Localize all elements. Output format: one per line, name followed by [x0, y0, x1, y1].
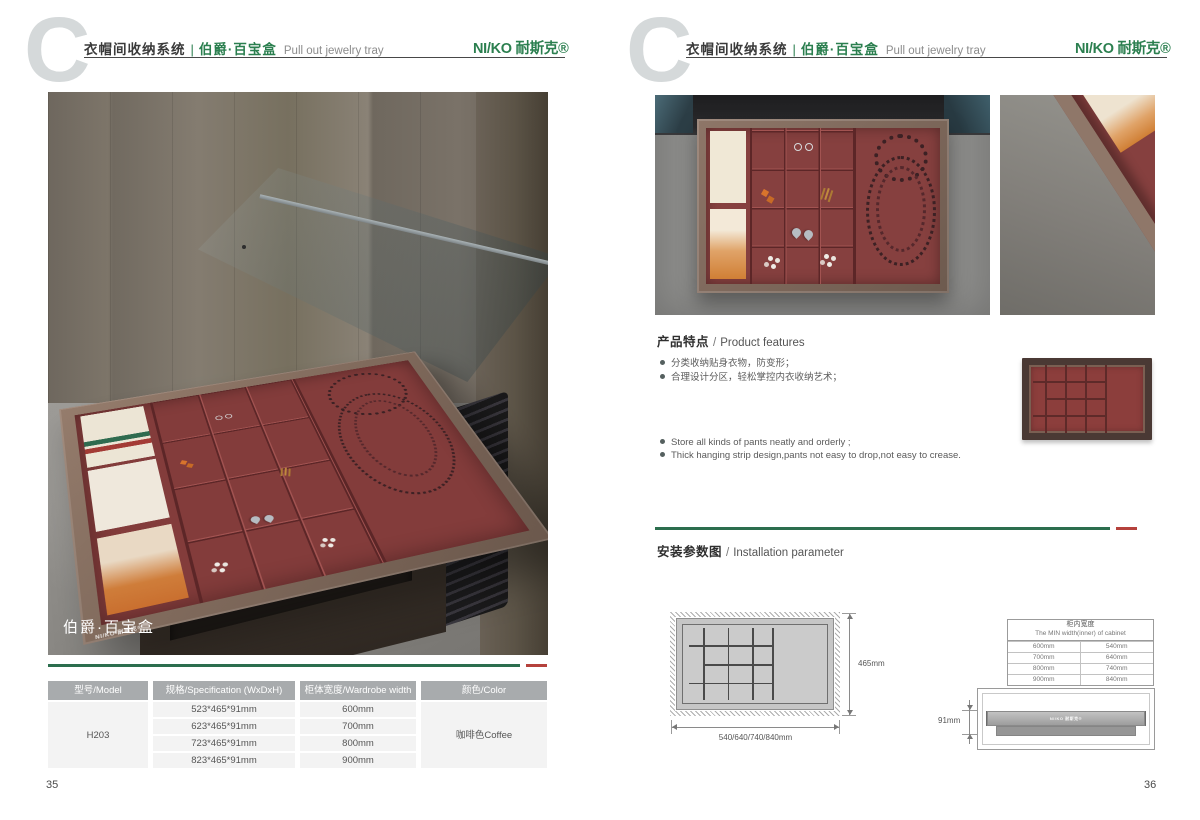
- title-separator: |: [793, 42, 796, 57]
- cell: 640mm: [1081, 652, 1154, 663]
- flower-brooch: [768, 256, 773, 261]
- feature-text: 合理设计分区，轻松掌控内衣收纳艺术；: [671, 372, 842, 383]
- table-row: 800mm 740mm: [1008, 663, 1153, 674]
- c-watermark: C: [626, 4, 692, 96]
- hinge-dot: [242, 245, 246, 249]
- c-watermark: C: [24, 4, 90, 96]
- section-divider-red: [526, 664, 547, 667]
- jewelry-tray: [697, 119, 949, 293]
- grid-line: [689, 683, 773, 685]
- page-number-left: 35: [46, 779, 58, 791]
- section-divider-red: [1116, 527, 1137, 530]
- tray-interior: [706, 128, 940, 284]
- dim-tick: [842, 715, 856, 716]
- product-name-en: Pull out jewelry tray: [284, 45, 384, 57]
- top-view-photo: [655, 95, 990, 315]
- table-row: 900mm 840mm: [1008, 674, 1153, 685]
- features-heading: 产品特点/Product features: [657, 331, 805, 351]
- title-separator: |: [191, 42, 194, 57]
- color-cell: 咖啡色Coffee: [421, 702, 547, 768]
- catalog-spread: C 衣帽间收纳系统|伯爵·百宝盒Pull out jewelry tray NI…: [0, 0, 1200, 820]
- scarf: [710, 209, 746, 279]
- cell: 700mm: [1008, 652, 1081, 663]
- grid-line: [689, 645, 773, 647]
- dim-arrow: [847, 710, 853, 715]
- section-divider-green: [655, 527, 1110, 530]
- main-photo-wardrobe: NI/KO 耐斯克® 伯爵·百宝盒: [48, 92, 548, 655]
- bullet-icon: [660, 452, 665, 457]
- table-row: 700mm 640mm: [1008, 652, 1153, 663]
- detail-photo: [1000, 95, 1155, 315]
- bullet-icon: [660, 439, 665, 444]
- model-cell: H203: [48, 702, 148, 768]
- min-width-table-header: 柜内宽度 The MIN width(inner) of cabinet: [1008, 620, 1153, 641]
- features-title-en: Product features: [720, 337, 804, 349]
- cell: 840mm: [1081, 674, 1154, 685]
- diagram-panel: [682, 624, 828, 704]
- scarf: [97, 524, 189, 616]
- earrings: [794, 138, 816, 156]
- width-cell: 700mm: [300, 719, 416, 734]
- bullet-icon: [660, 374, 665, 379]
- cell: 740mm: [1081, 663, 1154, 674]
- scarf: [80, 406, 155, 468]
- min-width-table: 柜内宽度 The MIN width(inner) of cabinet 600…: [1007, 619, 1154, 686]
- dim-line-vertical: [849, 614, 850, 715]
- feature-bullet: 分类收纳贴身衣物，防变形；: [660, 355, 795, 369]
- dim-arrow: [672, 724, 677, 730]
- dim-arrow: [847, 614, 853, 619]
- width-cell: 900mm: [300, 753, 416, 768]
- height-dimension-label: 91mm: [938, 716, 960, 725]
- cell: 900mm: [1008, 674, 1081, 685]
- installation-title-cn: 安装参数图: [657, 545, 722, 559]
- flower-brooch: [824, 254, 829, 259]
- spec-cell: 823*465*91mm: [153, 753, 295, 768]
- features-title-separator: /: [713, 337, 716, 349]
- col-header-model: 型号/Model: [48, 681, 148, 700]
- grid-line: [703, 664, 772, 666]
- product-name-cn: 伯爵·百宝盒: [801, 42, 879, 57]
- feature-bullet: Store all kinds of pants neatly and orde…: [660, 437, 851, 448]
- grid-line: [1033, 381, 1107, 383]
- installation-heading: 安装参数图/Installation parameter: [657, 541, 844, 561]
- brand-logo: NI/KO 耐斯克®: [1075, 37, 1171, 58]
- table-row: 600mm 540mm: [1008, 641, 1153, 652]
- open-compartment: [856, 128, 940, 284]
- tray-lower-profile: [996, 726, 1136, 736]
- scarf: [1075, 95, 1155, 153]
- brand-logo: NI/KO 耐斯克®: [473, 37, 569, 58]
- installation-title-en: Installation parameter: [733, 547, 844, 559]
- col-header-spec: 规格/Specification (WxDxH): [153, 681, 295, 700]
- side-view-diagram: NI/KO 耐斯克®: [977, 688, 1155, 750]
- min-width-title-cn: 柜内宽度: [1008, 621, 1153, 630]
- page-header-left: 衣帽间收纳系统|伯爵·百宝盒Pull out jewelry tray: [84, 38, 384, 59]
- product-name-cn: 伯爵·百宝盒: [199, 42, 277, 57]
- product-thumbnail: [1022, 358, 1152, 440]
- wood-corner: [655, 95, 693, 133]
- cell: 600mm: [1008, 641, 1081, 652]
- spec-table: 型号/Model 规格/Specification (WxDxH) 柜体宽度/W…: [48, 681, 548, 768]
- wood-corner: [944, 95, 990, 133]
- grid-line: [1045, 398, 1107, 400]
- spec-cell: 623*465*91mm: [153, 719, 295, 734]
- tray-interior: [1029, 365, 1145, 433]
- dim-arrow: [834, 724, 839, 730]
- bullet-icon: [660, 360, 665, 365]
- min-width-title-en: The MIN width(inner) of cabinet: [1008, 630, 1153, 638]
- col-header-color: 颜色/Color: [421, 681, 547, 700]
- spec-cell: 523*465*91mm: [153, 702, 295, 717]
- feature-bullet: Thick hanging strip design,pants not eas…: [660, 450, 961, 461]
- feature-text: Store all kinds of pants neatly and orde…: [671, 437, 851, 448]
- feature-text: 分类收纳贴身衣物，防变形；: [671, 358, 795, 369]
- product-name-en: Pull out jewelry tray: [886, 45, 986, 57]
- top-view-diagram: [670, 612, 840, 716]
- page-header-right: 衣帽间收纳系统|伯爵·百宝盒Pull out jewelry tray: [686, 38, 986, 59]
- scarf: [88, 459, 170, 532]
- feature-bullet: 合理设计分区，轻松掌控内衣收纳艺术；: [660, 369, 842, 383]
- installation-title-separator: /: [726, 547, 729, 559]
- cell: 540mm: [1081, 641, 1154, 652]
- width-dimension-label: 540/640/740/840mm: [672, 733, 839, 742]
- category-title: 衣帽间收纳系统: [84, 42, 186, 57]
- grid-line: [1033, 415, 1107, 417]
- dim-arrow: [967, 705, 973, 710]
- width-cell: 600mm: [300, 702, 416, 717]
- dim-tick: [839, 720, 840, 734]
- dim-line-horizontal: [672, 727, 839, 728]
- category-title: 衣帽间收纳系统: [686, 42, 788, 57]
- section-divider-green: [48, 664, 520, 667]
- feature-text: Thick hanging strip design,pants not eas…: [671, 450, 961, 461]
- necklace-strand: [876, 166, 926, 252]
- tray-profile: NI/KO 耐斯克®: [987, 711, 1145, 726]
- dim-tick: [962, 710, 978, 711]
- tray-logo-watermark: NI/KO 耐斯克®: [1050, 716, 1082, 722]
- dim-arrow: [967, 734, 973, 739]
- width-cell: 800mm: [300, 736, 416, 751]
- tray-corner: [1030, 95, 1155, 315]
- scarf: [710, 131, 746, 203]
- product-caption: 伯爵·百宝盒: [63, 616, 155, 637]
- col-header-width: 柜体宽度/Wardrobe width: [300, 681, 416, 700]
- grid-line: [772, 628, 774, 700]
- spec-cell: 723*465*91mm: [153, 736, 295, 751]
- cell: 800mm: [1008, 663, 1081, 674]
- scarf-column: [706, 128, 752, 284]
- depth-dimension-label: 465mm: [858, 659, 885, 668]
- page-number-right: 36: [1144, 779, 1156, 791]
- features-title-cn: 产品特点: [657, 335, 709, 349]
